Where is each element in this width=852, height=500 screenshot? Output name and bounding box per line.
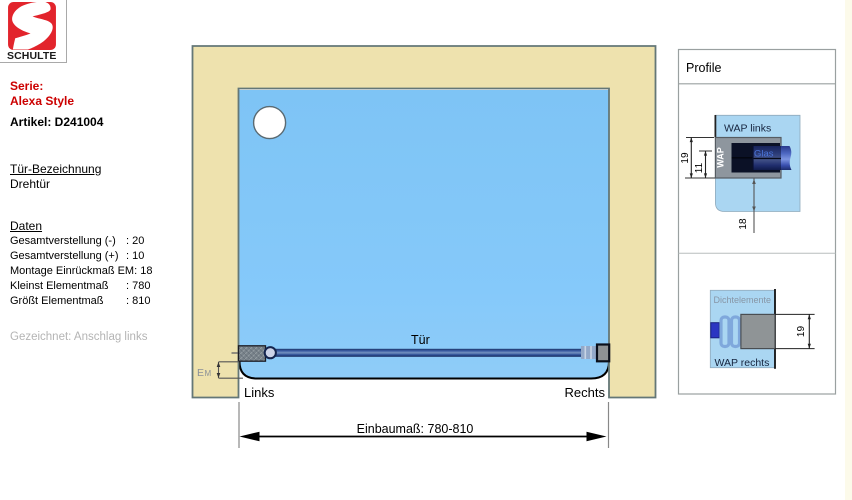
svg-text:WAP rechts: WAP rechts — [715, 357, 770, 369]
svg-text:Einbaumaß: 780-810: Einbaumaß: 780-810 — [357, 422, 474, 436]
svg-text:Profile: Profile — [686, 61, 721, 75]
svg-text:19: 19 — [796, 326, 807, 338]
svg-text:Glas: Glas — [754, 149, 774, 160]
svg-text:Rechts: Rechts — [565, 385, 606, 400]
svg-text:Links: Links — [244, 385, 275, 400]
svg-text:19: 19 — [680, 152, 691, 164]
svg-text:18: 18 — [738, 218, 749, 230]
svg-text:WAP links: WAP links — [724, 123, 771, 135]
svg-text:Tür: Tür — [411, 333, 430, 347]
svg-text:11: 11 — [694, 162, 705, 173]
svg-text:WAP: WAP — [716, 147, 726, 168]
svg-text:Dichtelemente: Dichtelemente — [714, 295, 772, 305]
svg-text:M: M — [205, 369, 212, 378]
svg-text:E: E — [197, 367, 204, 379]
